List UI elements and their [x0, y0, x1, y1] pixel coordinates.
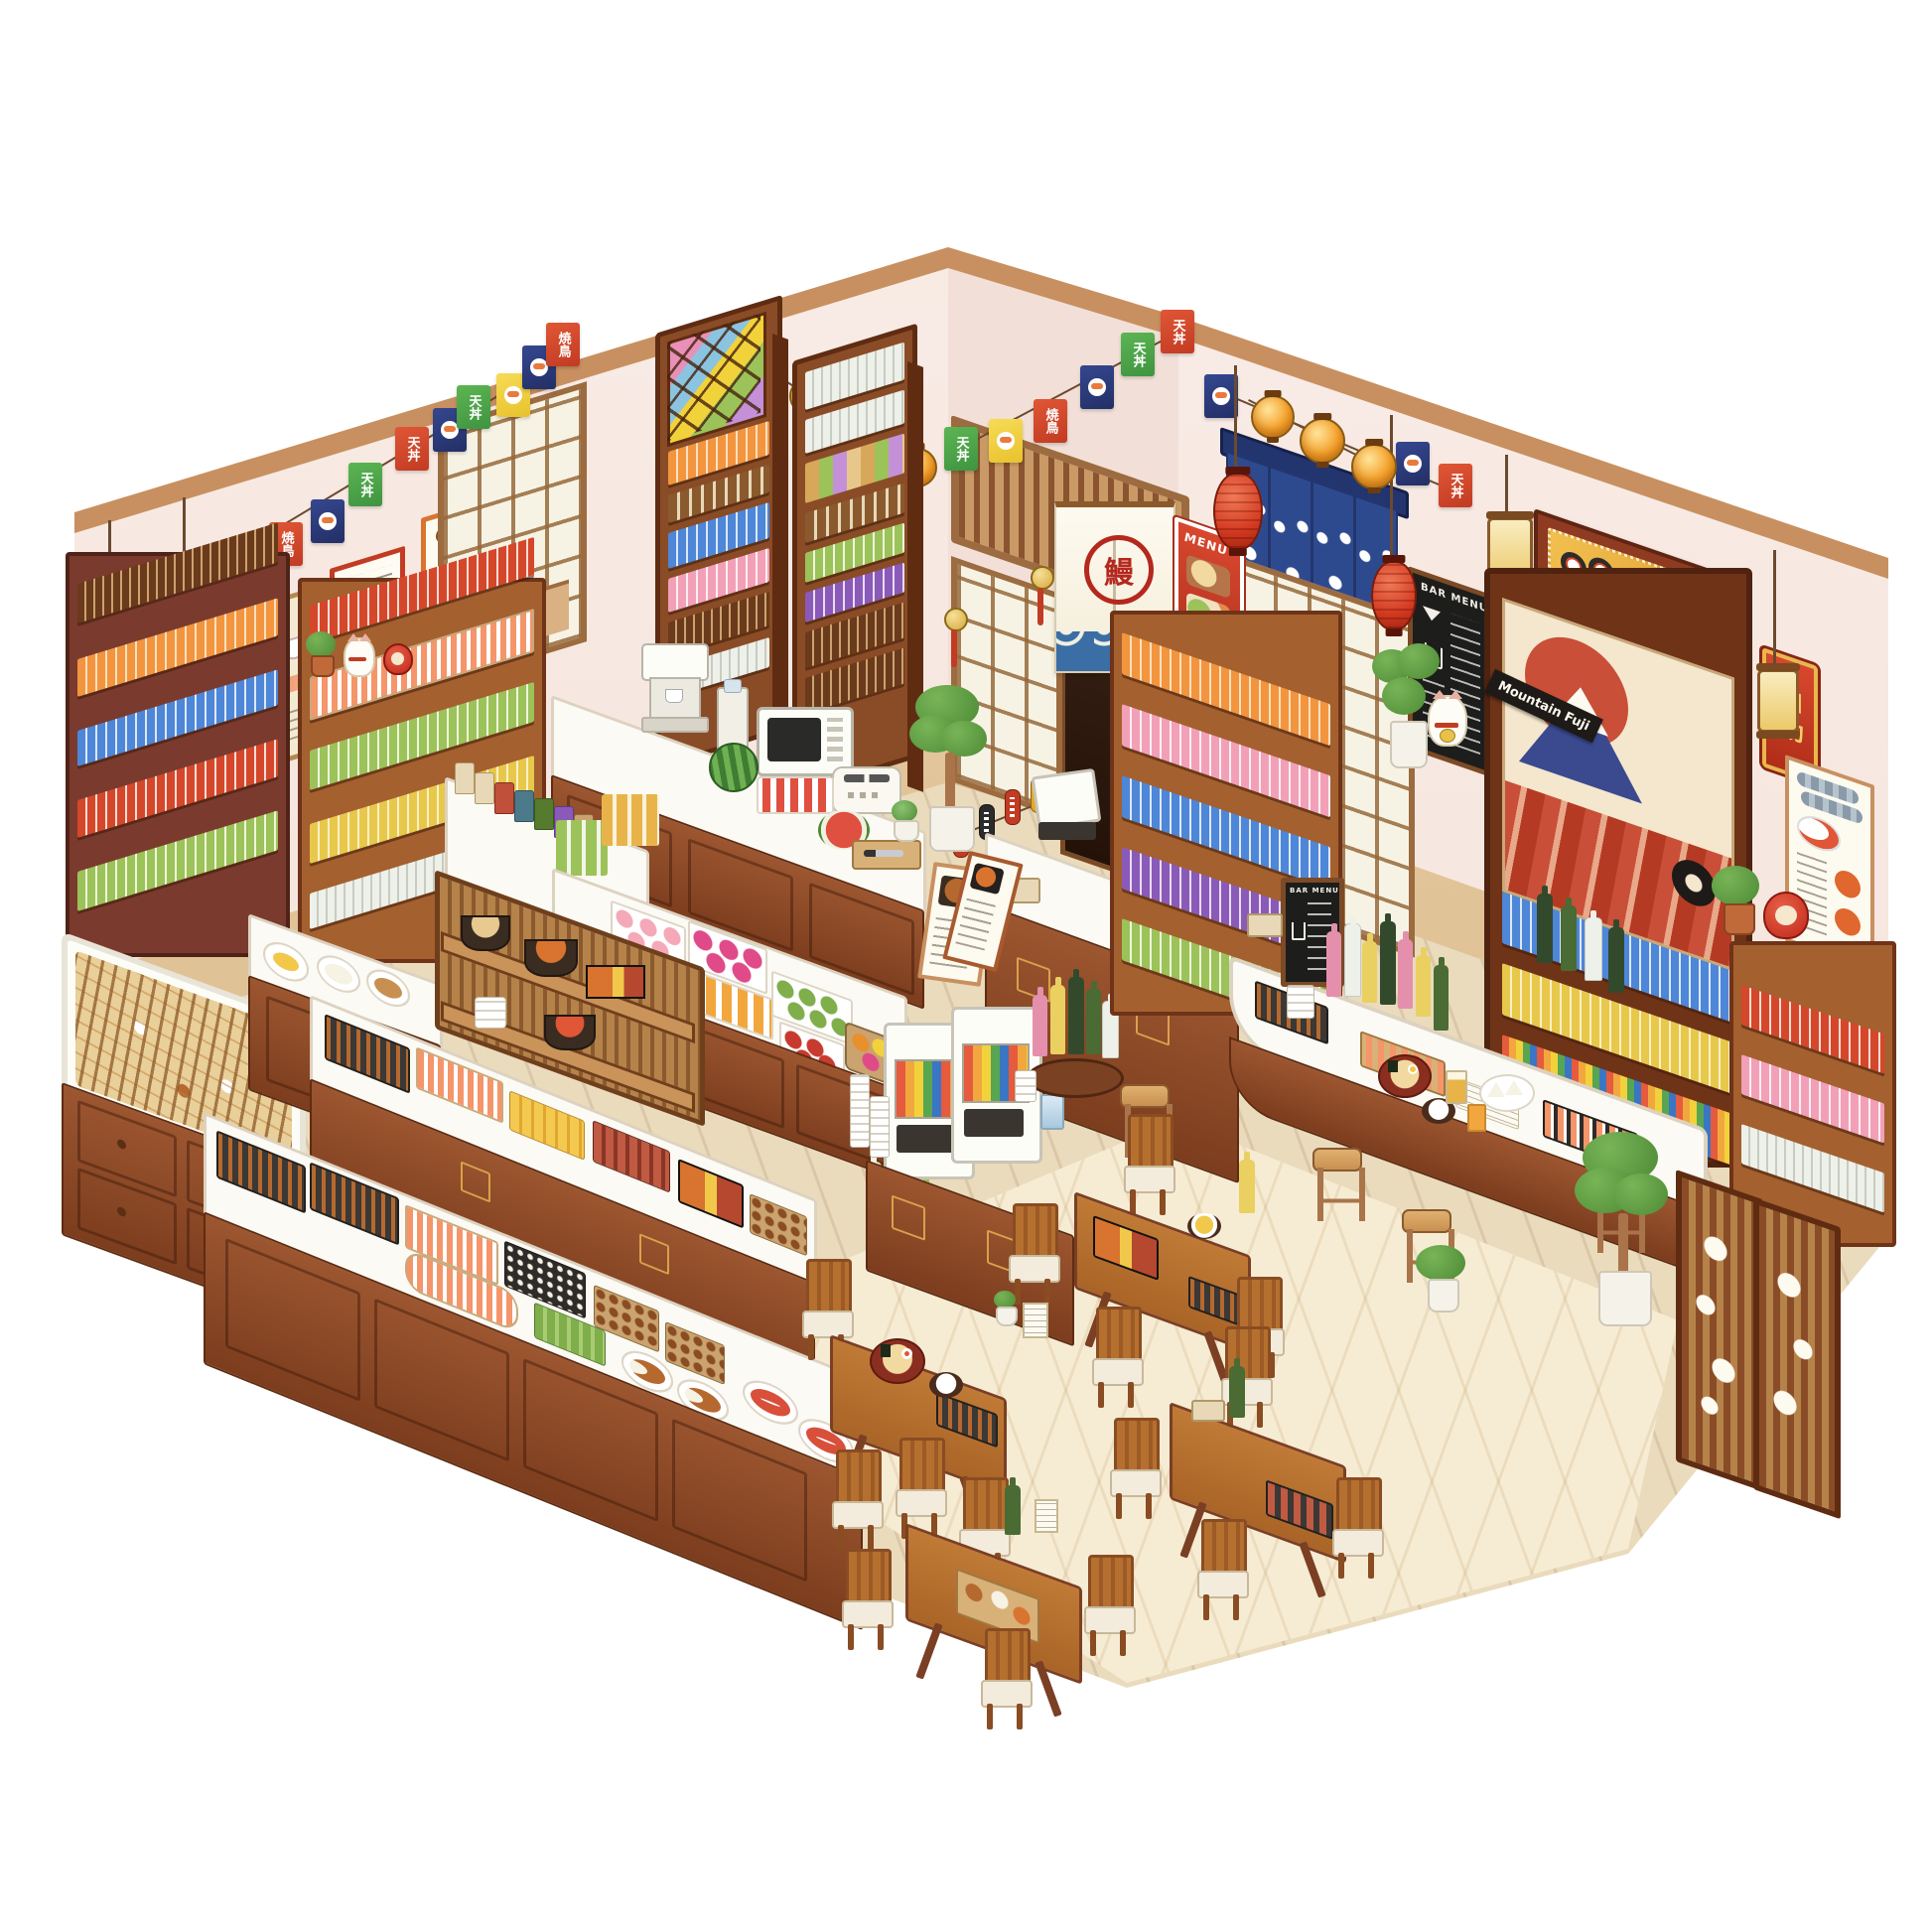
banner-flag-sushi[interactable]: [1080, 365, 1114, 409]
ramen-bowl[interactable]: [870, 1338, 925, 1384]
sake-bottle[interactable]: [1326, 931, 1341, 997]
sake-bottle[interactable]: [1561, 905, 1577, 971]
banner-flag-yakitori[interactable]: 焼鳥: [1034, 399, 1067, 443]
sake-bottle[interactable]: [1416, 955, 1431, 1017]
glass-sketch: [1292, 922, 1306, 940]
red-chochin-lantern[interactable]: [1213, 473, 1263, 550]
dining-chair[interactable]: [840, 1549, 892, 1650]
daruma-face: [391, 652, 404, 665]
cup-stack[interactable]: [850, 1074, 870, 1148]
bell-charm[interactable]: [941, 608, 967, 671]
tamago-tray[interactable]: [509, 1090, 585, 1161]
bar-menu-title: BAR MENU: [1290, 887, 1339, 895]
toaster-slots: [844, 774, 890, 782]
pink-bottle-row: [1741, 1054, 1884, 1144]
tassel: [1037, 588, 1043, 625]
condiment-shelf-dark[interactable]: [66, 552, 290, 957]
maneki-neko-figurine[interactable]: [1428, 695, 1467, 747]
lantern-rod: [1390, 415, 1393, 561]
monstera-leaf: [1398, 643, 1440, 679]
bar-stool[interactable]: [1312, 1148, 1362, 1227]
sakura-folding-screen[interactable]: [1753, 1197, 1841, 1519]
toaster-buttons: [848, 792, 884, 798]
microwave-window: [767, 718, 821, 761]
sake-bottle[interactable]: [1362, 941, 1377, 1003]
sake-bottle[interactable]: [1005, 1485, 1021, 1535]
rice-bowl[interactable]: [929, 1372, 963, 1398]
white-pot: [996, 1307, 1018, 1326]
banner-flag-tendon[interactable]: 天丼: [1439, 464, 1472, 507]
sake-bottle[interactable]: [1033, 995, 1047, 1056]
grill-meat-tray[interactable]: [1266, 1479, 1333, 1540]
machine-base: [641, 717, 709, 733]
table-round-top: [1027, 1058, 1124, 1098]
tree-foliage: [1614, 1173, 1668, 1215]
banner-flag-sushi[interactable]: [311, 499, 345, 543]
egg-half: [1408, 1064, 1418, 1074]
dining-chair[interactable]: [894, 1438, 945, 1539]
dining-chair[interactable]: [1108, 1418, 1160, 1519]
skewer-tray[interactable]: [936, 1392, 998, 1449]
daruma-figurine[interactable]: [1763, 892, 1809, 939]
cat-ear: [1433, 690, 1447, 699]
dining-chair[interactable]: [979, 1628, 1031, 1729]
cat-collar: [1435, 723, 1458, 728]
nori-sheet: [1388, 1060, 1398, 1072]
amber-drink-cups[interactable]: [602, 794, 659, 846]
red-bottle-row: [1741, 985, 1884, 1074]
banner-flag-yakitori[interactable]: 焼鳥: [546, 323, 580, 366]
banner-flag-tendon[interactable]: 天丼: [1121, 333, 1155, 376]
table-leg: [915, 1622, 942, 1679]
cat-ear: [359, 633, 371, 641]
karaage-tray[interactable]: [750, 1193, 807, 1256]
cat-ear: [1449, 690, 1462, 699]
sushi-emblem-icon: [504, 386, 522, 404]
dining-chair[interactable]: [1090, 1307, 1142, 1408]
monitor-screen: [1032, 768, 1102, 830]
fried-egg-plate[interactable]: [263, 935, 309, 988]
daruma-face: [1775, 905, 1797, 925]
tree-foliage: [941, 721, 987, 757]
coffee-bag: [494, 782, 514, 814]
paper-lantern[interactable]: [1251, 395, 1295, 439]
matcha-drink-cups[interactable]: [556, 820, 608, 876]
vermilion-stamp: [1835, 904, 1861, 939]
sake-bottle-row: [1741, 1124, 1884, 1213]
nabe-pot: [461, 915, 510, 951]
lantern-rod: [1234, 365, 1237, 473]
sake-bottle[interactable]: [1068, 977, 1084, 1054]
plant-foliage: [1712, 866, 1759, 905]
sake-bottle[interactable]: [1050, 985, 1065, 1054]
hanging-tag[interactable]: [1005, 789, 1021, 825]
table-menu-card[interactable]: [1035, 1499, 1058, 1533]
machine-body: [641, 643, 709, 681]
unagi-bento-box[interactable]: [678, 1159, 744, 1229]
tassel: [951, 629, 957, 667]
nori-sheet: [881, 1344, 891, 1357]
banner-flag-tendon[interactable]: 天丼: [348, 463, 382, 506]
potted-plant-small[interactable]: [304, 631, 338, 675]
sake-bottle[interactable]: [1537, 894, 1553, 963]
bell: [944, 608, 968, 631]
banner-flag-sushi[interactable]: [1204, 374, 1238, 418]
beer-glass[interactable]: [1446, 1070, 1467, 1104]
sushi-emblem-icon: [1088, 378, 1106, 396]
dining-chair[interactable]: [1195, 1519, 1247, 1620]
plant-foliage: [306, 631, 336, 657]
sakura-cutout: [1769, 1239, 1815, 1453]
kitchen-knife: [864, 850, 903, 857]
paper-lantern[interactable]: [1351, 444, 1397, 489]
banner-flag-tendon[interactable]: 天丼: [395, 427, 429, 471]
menu-lines: [955, 896, 996, 951]
hotpot-rack[interactable]: [435, 870, 695, 1088]
dispenser-slot: [964, 1109, 1024, 1137]
nabe-pot: [524, 939, 578, 977]
whole-watermelon[interactable]: [709, 743, 759, 792]
monstera-leaf: [1382, 677, 1426, 715]
sake-bottle[interactable]: [1608, 927, 1624, 993]
banner-flag-sushi[interactable]: [989, 419, 1023, 463]
red-chochin-lantern[interactable]: [1371, 561, 1417, 630]
narutomaki: [901, 1348, 912, 1359]
sushi-emblem-icon: [997, 432, 1015, 450]
paper-lantern[interactable]: [1300, 418, 1345, 464]
sake-bottle[interactable]: [1086, 989, 1101, 1054]
rice-bowl-stack: [475, 997, 506, 1029]
white-planter: [929, 806, 975, 852]
ramen-bowl[interactable]: [1378, 1054, 1432, 1098]
bell-charm[interactable]: [1028, 566, 1053, 629]
sake-bottle[interactable]: [1229, 1366, 1245, 1418]
dispenser-slot: [897, 1125, 956, 1153]
pos-monitor[interactable]: [1035, 772, 1096, 846]
sake-bottle[interactable]: [1585, 917, 1602, 981]
potted-tree[interactable]: [909, 685, 989, 854]
sushi-emblem-icon: [319, 512, 337, 530]
onigiri-plate[interactable]: [1479, 1074, 1535, 1112]
vermilion-stamp: [1835, 867, 1861, 901]
tissue-box[interactable]: [1247, 913, 1283, 937]
sushi-emblem-icon: [1212, 387, 1230, 405]
tree-trunk: [945, 753, 955, 808]
rice-plate[interactable]: [317, 949, 360, 999]
onigiri: [1487, 1082, 1505, 1097]
plant-foliage: [1416, 1245, 1465, 1281]
orange-juice-glass[interactable]: [1467, 1104, 1486, 1132]
banner-flag-tendon[interactable]: 天丼: [944, 427, 978, 471]
dining-chair[interactable]: [1082, 1555, 1134, 1656]
menu-stand[interactable]: [925, 856, 999, 995]
white-pot: [1428, 1279, 1459, 1312]
banner-flag-tendon[interactable]: 天丼: [1161, 310, 1194, 353]
potted-plant-small[interactable]: [1412, 1245, 1471, 1320]
izakaya-room-illustration: 鰻 MENU BAR MENU: [0, 0, 1932, 1932]
table-menu-card[interactable]: [1023, 1303, 1048, 1338]
dining-chair[interactable]: [1007, 1203, 1058, 1305]
cat-ear: [347, 633, 359, 641]
menu-photo: [969, 863, 1004, 895]
cup-stack[interactable]: [870, 1096, 890, 1158]
grinder-hopper: [724, 679, 742, 693]
terracotta-pot: [1724, 903, 1755, 935]
martini-glass-sketch: [1423, 606, 1441, 623]
bento-box: [586, 965, 645, 999]
yuzu-sake-bottle[interactable]: [1239, 1160, 1255, 1213]
bento-box[interactable]: [1093, 1215, 1159, 1281]
cabinet-side: [772, 334, 788, 766]
noren-crest-ring: 鰻: [1084, 535, 1154, 605]
dining-chair[interactable]: [830, 1449, 882, 1551]
karaage-tray[interactable]: [665, 1321, 725, 1385]
potted-tree-large[interactable]: [1575, 1132, 1670, 1340]
dining-chair[interactable]: [1330, 1477, 1382, 1579]
white-planter: [1598, 1271, 1652, 1326]
sake-bottle[interactable]: [1434, 965, 1449, 1031]
noodle-plate[interactable]: [366, 963, 410, 1013]
bowl-stack[interactable]: [1015, 1070, 1036, 1102]
maneki-neko-figurine[interactable]: [344, 637, 375, 677]
tissue-box[interactable]: [1191, 1400, 1225, 1422]
sakura-cutout: [1692, 1211, 1737, 1426]
right-wall-menu-poster[interactable]: [1785, 755, 1874, 972]
terracotta-pot: [311, 655, 335, 677]
crab-plate[interactable]: [743, 1372, 798, 1433]
monitor-base: [1038, 822, 1096, 840]
bell: [1031, 566, 1054, 590]
espresso-cup: [665, 689, 683, 703]
champagne-bottle[interactable]: [1380, 921, 1396, 1005]
coffee-bag: [475, 772, 494, 804]
bowl-stack[interactable]: [1287, 985, 1314, 1019]
espresso-machine[interactable]: [641, 643, 705, 733]
coffee-bag: [534, 798, 554, 830]
lantern-rod: [1505, 455, 1508, 517]
menu-food-photo: [1186, 554, 1230, 599]
sake-bottle[interactable]: [1398, 939, 1413, 1009]
banner-flag-sushi[interactable]: [1396, 442, 1430, 485]
succulent-pot[interactable]: [993, 1291, 1019, 1324]
sushi-emblem-icon: [1404, 455, 1422, 473]
dining-chair[interactable]: [1219, 1326, 1271, 1428]
nabe-pot: [544, 1015, 596, 1050]
potted-plant-small[interactable]: [1712, 866, 1763, 935]
white-pot: [1390, 721, 1428, 768]
microwave-buttons: [827, 718, 843, 761]
daruma-figurine[interactable]: [383, 643, 413, 675]
hexagonal-lamp[interactable]: [1757, 669, 1799, 733]
sake-bottle[interactable]: [1344, 923, 1361, 997]
tree-trunk: [1618, 1213, 1628, 1275]
onigiri: [1505, 1080, 1523, 1095]
watermelon-slice-tray[interactable]: [757, 776, 834, 814]
sakura-folding-screen[interactable]: [1676, 1170, 1763, 1491]
coffee-bag: [455, 762, 475, 794]
lantern-rod: [1773, 550, 1776, 669]
cat-collar: [348, 657, 366, 661]
banner-flag-tendon[interactable]: 天丼: [457, 385, 490, 429]
gold-coin: [1440, 729, 1455, 743]
coffee-bag: [514, 790, 534, 822]
egg-rice-bowl[interactable]: [1187, 1213, 1221, 1239]
dining-chair[interactable]: [1122, 1114, 1173, 1215]
noren-character: 鰻: [1104, 548, 1134, 592]
